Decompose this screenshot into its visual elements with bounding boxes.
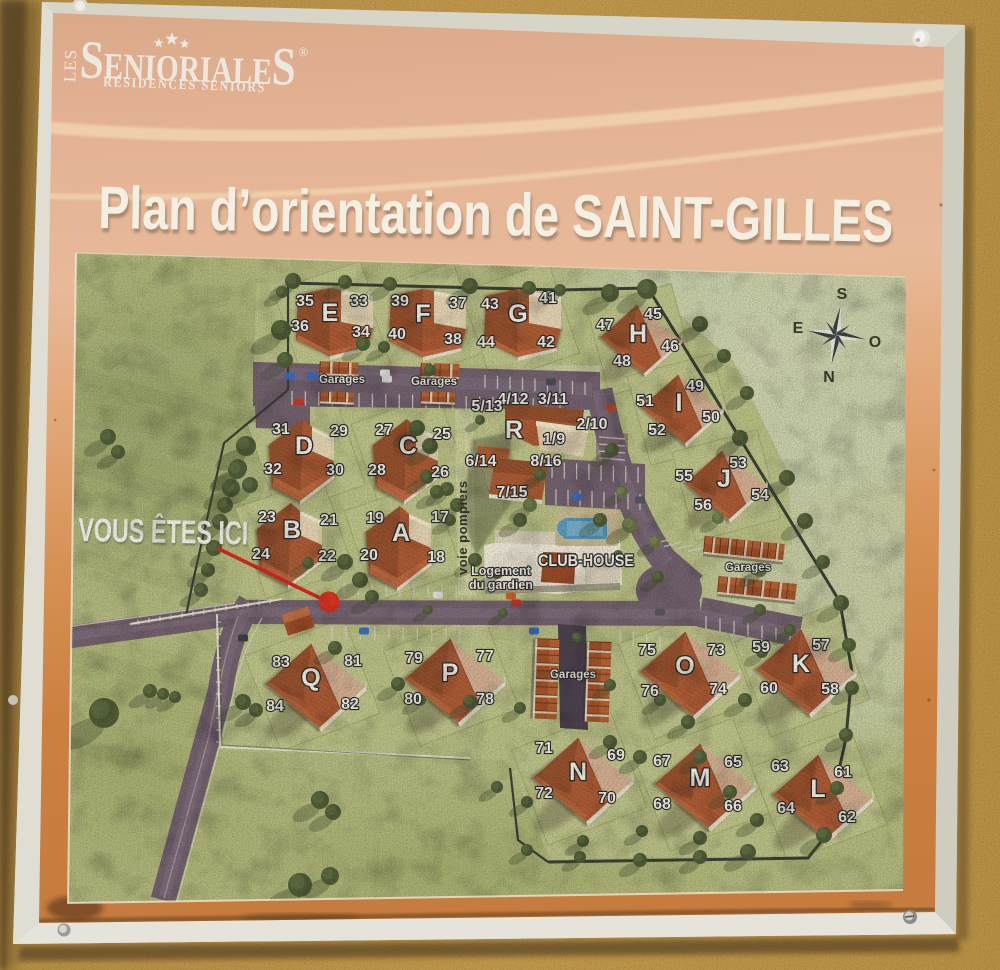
svg-text:Plan d’orientation de SAINT-GI: Plan d’orientation de SAINT-GILLES <box>98 174 894 255</box>
svg-text:LES: LES <box>60 48 80 82</box>
svg-text:®: ® <box>298 44 309 59</box>
